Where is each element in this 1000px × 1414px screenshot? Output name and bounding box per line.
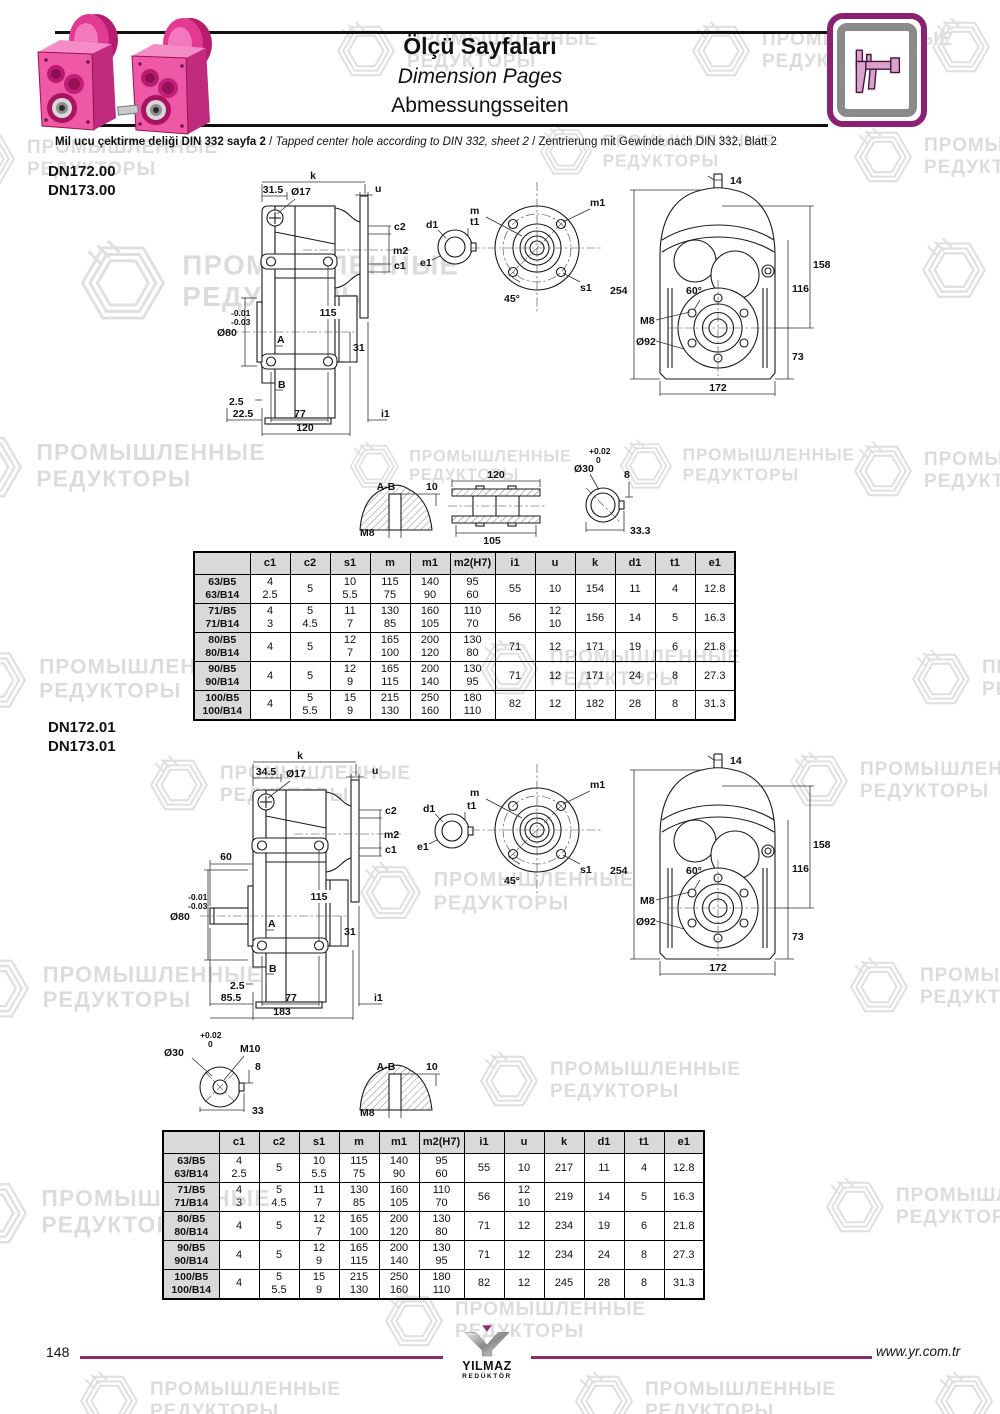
dim-value-cell: 4 3 — [250, 604, 290, 633]
dim-value-cell: 110 70 — [450, 604, 495, 633]
dim-value-cell: 12 — [504, 1241, 544, 1270]
hexagon-swirl-icon — [852, 440, 914, 502]
column-header: m2(H7) — [419, 1131, 464, 1154]
dim-value-cell: 5 4.5 — [290, 604, 330, 633]
dim-hole-d17: Ø17 — [286, 768, 306, 780]
tolerance-lower: -0.03 — [188, 901, 208, 911]
dim-60-degrees: 60° — [686, 285, 702, 297]
dim-value-cell: 12.8 — [695, 575, 735, 604]
dim-value-cell: 5 — [290, 633, 330, 662]
column-header: s1 — [299, 1131, 339, 1154]
dim-value-cell: 10 — [535, 575, 575, 604]
dim-value-cell: 21.8 — [664, 1212, 704, 1241]
dim-value-cell: 19 — [615, 633, 655, 662]
dim-i1: i1 — [381, 408, 390, 420]
column-header: u — [504, 1131, 544, 1154]
dimension-table-1: c1c2s1mm1m2(H7)i1ukd1t1e1 63/B5 63/B144 … — [193, 551, 736, 721]
column-header: m1 — [379, 1131, 419, 1154]
section-marker-b: B — [269, 963, 277, 975]
dim-value-cell: 215 130 — [339, 1270, 379, 1299]
table-row: 80/B5 80/B144512 7165 100200 120130 8071… — [194, 633, 735, 662]
dim-60: 60 — [220, 851, 232, 863]
dim-254: 254 — [610, 865, 628, 877]
dim-value-cell: 5 — [655, 604, 695, 633]
column-header: m — [339, 1131, 379, 1154]
dim-c1: c1 — [385, 844, 397, 856]
model-number: DN172.00 — [48, 162, 116, 181]
dim-value-cell: 14 — [584, 1183, 624, 1212]
dim-value-cell: 8 — [624, 1241, 664, 1270]
dim-value-cell: 71 — [495, 633, 535, 662]
hexagon-swirl-icon — [0, 128, 17, 190]
dim-value-cell: 250 160 — [410, 691, 450, 720]
dim-value-cell: 165 115 — [370, 662, 410, 691]
hexagon-swirl-icon — [0, 953, 31, 1024]
watermark-text: ПРОМЫШЛЕННЫЕРЕДУКТОРЫ — [683, 446, 855, 486]
dim-73: 73 — [792, 351, 804, 363]
table-header-row: c1c2s1mm1m2(H7)i1ukd1t1e1 — [163, 1131, 704, 1154]
dim-value-cell: 55 — [495, 575, 535, 604]
dim-value-cell: 27.3 — [664, 1241, 704, 1270]
gearbox-photo-1 — [26, 10, 126, 136]
dim-10: 10 — [426, 1061, 438, 1073]
dim-value-cell: 19 — [584, 1212, 624, 1241]
model-number: DN173.01 — [48, 737, 116, 756]
hexagon-swirl-icon — [910, 648, 972, 710]
watermark-text: ПРОМЫШЛЕННЫЕРЕДУКТОРЫ — [982, 657, 1000, 701]
dim-value-cell: 160 105 — [379, 1183, 419, 1212]
dim-value-cell: 200 120 — [379, 1212, 419, 1241]
dim-k: k — [310, 170, 316, 182]
dim-value-cell: 110 70 — [419, 1183, 464, 1212]
title-english: Dimension Pages — [310, 65, 650, 89]
dim-22-5: 22.5 — [233, 408, 254, 420]
model-cell: 71/B5 71/B14 — [163, 1183, 219, 1212]
table-row: 63/B5 63/B144 2.5510 5.5115 75140 9095 6… — [163, 1154, 704, 1183]
dim-d1: d1 — [423, 803, 435, 815]
dim-k: k — [297, 750, 303, 762]
dim-m2: m2 — [393, 245, 408, 257]
table-row: 71/B5 71/B144 35 4.511 7130 85160 105110… — [163, 1183, 704, 1212]
hexagon-swirl-icon — [538, 124, 594, 180]
table-row: 90/B5 90/B144512 9165 115200 140130 9571… — [194, 662, 735, 691]
section-1-models: DN172.00 DN173.00 — [48, 162, 116, 200]
page-title: Ölçü Sayfaları Dimension Pages Abmessung… — [310, 33, 650, 118]
section-label-ab: A-B — [377, 481, 396, 493]
dim-value-cell: 165 100 — [370, 633, 410, 662]
watermark: ПРОМЫШЛЕННЫЕРЕДУКТОРЫ — [920, 236, 1000, 304]
column-header: k — [575, 552, 615, 575]
dim-value-cell: 8 — [655, 662, 695, 691]
model-cell: 80/B5 80/B14 — [194, 633, 250, 662]
dim-value-cell: 4 — [250, 691, 290, 720]
dim-value-cell: 5 — [259, 1212, 299, 1241]
section-marker-a: A — [277, 334, 285, 346]
dim-value-cell: 5 — [259, 1154, 299, 1183]
dim-value-cell: 16.3 — [695, 604, 735, 633]
dim-d30: Ø30 — [574, 463, 594, 475]
dim-value-cell: 82 — [464, 1270, 504, 1299]
dim-172: 172 — [709, 962, 727, 974]
hexagon-swirl-icon — [0, 646, 28, 714]
dimension-table-2: c1c2s1mm1m2(H7)i1ukd1t1e1 63/B5 63/B144 … — [162, 1130, 705, 1300]
hexagon-swirl-icon — [824, 1176, 886, 1238]
dim-value-cell: 6 — [655, 633, 695, 662]
watermark-text: ПРОМЫШЛЕННЫЕРЕДУКТОРЫ — [645, 1379, 836, 1414]
model-cell: 90/B5 90/B14 — [163, 1241, 219, 1270]
dim-value-cell: 182 — [575, 691, 615, 720]
gearbox-photo-2 — [118, 10, 218, 136]
dim-e1: e1 — [417, 841, 429, 853]
table-row: 90/B5 90/B144512 9165 115200 140130 9571… — [163, 1241, 704, 1270]
hexagon-swirl-icon — [930, 16, 992, 78]
model-cell: 100/B5 100/B14 — [194, 691, 250, 720]
front-view-drawing-1: 14 254 158 116 73 60° M8 Ø92 172 — [598, 168, 830, 408]
dim-e1: e1 — [420, 257, 432, 269]
column-header: d1 — [584, 1131, 624, 1154]
watermark-text: ПРОМЫШЛЕННЫЕРЕДУКТОРЫ — [860, 759, 1000, 803]
dim-8: 8 — [255, 1061, 261, 1073]
tolerance-lower: 0 — [208, 1039, 213, 1049]
watermark: ПРОМЫШЛЕННЫЕРЕДУКТОРЫ — [478, 1050, 741, 1112]
shaft-end-detail-2: +0.02 0 Ø30 M10 8 33 — [152, 1028, 297, 1123]
tolerance-lower: 0 — [596, 455, 601, 465]
dim-bore-d80: Ø80 — [170, 911, 190, 923]
dim-value-cell: 4 — [655, 575, 695, 604]
dim-value-cell: 56 — [464, 1183, 504, 1212]
subtitle-separator: / — [269, 136, 272, 148]
dim-value-cell: 12 10 — [504, 1183, 544, 1212]
dim-value-cell: 130 85 — [339, 1183, 379, 1212]
column-header: t1 — [655, 552, 695, 575]
page-number: 148 — [46, 1344, 69, 1360]
dim-value-cell: 6 — [624, 1212, 664, 1241]
product-photos — [26, 10, 218, 141]
dim-60-degrees: 60° — [686, 865, 702, 877]
dim-120: 120 — [296, 422, 314, 434]
dim-value-cell: 11 — [584, 1154, 624, 1183]
dim-77: 77 — [285, 992, 297, 1004]
dim-77: 77 — [294, 408, 306, 420]
watermark: ПРОМЫШЛЕННЫЕРЕДУКТОРЫ — [910, 648, 1000, 710]
dim-value-cell: 71 — [464, 1241, 504, 1270]
hexagon-swirl-icon — [573, 1370, 635, 1414]
title-turkish: Ölçü Sayfaları — [310, 33, 650, 60]
table-row: 63/B5 63/B144 2.5510 5.5115 75140 9095 6… — [194, 575, 735, 604]
column-header — [163, 1131, 219, 1154]
dim-value-cell: 234 — [544, 1212, 584, 1241]
dim-bore-d80: Ø80 — [217, 327, 237, 339]
dim-value-cell: 11 — [615, 575, 655, 604]
dim-value-cell: 4 3 — [219, 1183, 259, 1212]
yilmaz-logo-icon — [447, 1324, 527, 1356]
hexagon-swirl-icon — [78, 1370, 140, 1414]
dim-value-cell: 245 — [544, 1270, 584, 1299]
column-header — [194, 552, 250, 575]
dim-value-cell: 250 160 — [379, 1270, 419, 1299]
column-header: e1 — [695, 552, 735, 575]
dim-c2: c2 — [385, 805, 397, 817]
column-header: t1 — [624, 1131, 664, 1154]
dim-85-5: 85.5 — [221, 992, 242, 1004]
dim-value-cell: 171 — [575, 633, 615, 662]
column-header: m1 — [410, 552, 450, 575]
watermark: ПРОМЫШЛЕННЫЕРЕДУКТОРЫ — [852, 440, 1000, 502]
column-header: c1 — [219, 1131, 259, 1154]
hexagon-swirl-icon — [478, 1050, 540, 1112]
dim-value-cell: 10 5.5 — [299, 1154, 339, 1183]
dim-value-cell: 11 7 — [330, 604, 370, 633]
dim-s1: s1 — [580, 864, 592, 876]
model-cell: 63/B5 63/B14 — [194, 575, 250, 604]
dim-10: 10 — [426, 481, 438, 493]
hexagon-swirl-icon — [0, 1176, 29, 1250]
dim-value-cell: 82 — [495, 691, 535, 720]
dim-value-cell: 10 — [504, 1154, 544, 1183]
dim-value-cell: 21.8 — [695, 633, 735, 662]
caliper-icon — [837, 23, 917, 117]
title-german: Abmessungsseiten — [310, 94, 650, 118]
column-header: d1 — [615, 552, 655, 575]
dim-33: 33 — [252, 1105, 264, 1117]
dim-value-cell: 200 140 — [379, 1241, 419, 1270]
hexagon-swirl-icon — [933, 1370, 995, 1414]
dim-value-cell: 71 — [464, 1212, 504, 1241]
dim-158: 158 — [813, 839, 831, 851]
dim-value-cell: 171 — [575, 662, 615, 691]
dim-value-cell: 165 100 — [339, 1212, 379, 1241]
watermark: ПРОМЫШЛЕННЫЕРЕДУКТОРЫ — [930, 16, 1000, 78]
dim-value-cell: 12 — [535, 633, 575, 662]
dim-d92: Ø92 — [636, 916, 656, 928]
dim-m10: M10 — [240, 1043, 261, 1055]
watermark-text: ПРОМЫШЛЕННЫЕРЕДУКТОРЫ — [150, 1379, 341, 1414]
dim-value-cell: 12 9 — [330, 662, 370, 691]
dim-value-cell: 28 — [584, 1270, 624, 1299]
table-header-row: c1c2s1mm1m2(H7)i1ukd1t1e1 — [194, 552, 735, 575]
dim-s1: s1 — [580, 282, 592, 294]
dim-14: 14 — [730, 175, 742, 187]
dim-value-cell: 130 95 — [450, 662, 495, 691]
subtitle-separator: / — [532, 136, 535, 148]
dim-value-cell: 5 — [259, 1241, 299, 1270]
dim-value-cell: 24 — [615, 662, 655, 691]
logo-text-reduktor: REDÜKTÖR — [443, 1373, 531, 1380]
dim-value-cell: 140 90 — [410, 575, 450, 604]
section-marker-b: B — [278, 379, 286, 391]
model-cell: 90/B5 90/B14 — [194, 662, 250, 691]
watermark-text: ПРОМЫШЛЕННЫЕРЕДУКТОРЫ — [896, 1185, 1000, 1229]
hexagon-swirl-icon — [920, 236, 988, 304]
website-url: www.yr.com.tr — [876, 1344, 960, 1359]
front-view-drawing-2: 14 254 158 116 73 60° M8 Ø92 172 — [598, 748, 830, 988]
dim-value-cell: 12 — [535, 691, 575, 720]
model-number: DN173.00 — [48, 181, 116, 200]
dim-34-5: 34.5 — [256, 766, 277, 778]
catalog-page: ПРОМЫШЛЕННЫЕРЕДУКТОРЫПРОМЫШЛЕННЫЕРЕДУКТО… — [0, 0, 1000, 1414]
dim-value-cell: 156 — [575, 604, 615, 633]
dim-m8-tap: M8 — [360, 1107, 375, 1119]
dim-c1: c1 — [394, 260, 406, 272]
dim-value-cell: 180 110 — [450, 691, 495, 720]
dim-value-cell: 219 — [544, 1183, 584, 1212]
bore-end-detail-1: +0.02 0 Ø30 8 33.3 — [572, 444, 664, 544]
dim-45-degrees: 45° — [504, 293, 520, 305]
column-header: u — [535, 552, 575, 575]
column-header: m2(H7) — [450, 552, 495, 575]
keyway-section-detail-1: A-B 10 M8 — [352, 478, 447, 540]
dim-value-cell: 130 80 — [450, 633, 495, 662]
dim-value-cell: 55 — [464, 1154, 504, 1183]
dim-value-cell: 27.3 — [695, 662, 735, 691]
dim-value-cell: 56 — [495, 604, 535, 633]
dim-value-cell: 215 130 — [370, 691, 410, 720]
dim-value-cell: 4 — [624, 1154, 664, 1183]
dim-d1: d1 — [426, 219, 438, 231]
dim-value-cell: 14 — [615, 604, 655, 633]
footer-rule-right — [531, 1356, 872, 1359]
dim-254: 254 — [610, 285, 628, 297]
column-header: c2 — [259, 1131, 299, 1154]
table-row: 71/B5 71/B144 35 4.511 7130 85160 105110… — [194, 604, 735, 633]
dim-m8: M8 — [640, 895, 655, 907]
dim-172: 172 — [709, 382, 727, 394]
dim-value-cell: 24 — [584, 1241, 624, 1270]
dim-value-cell: 130 85 — [370, 604, 410, 633]
subtitle-line: Mil ucu çektirme deliği DIN 332 sayfa 2 … — [55, 136, 955, 148]
model-cell: 100/B5 100/B14 — [163, 1270, 219, 1299]
watermark: ПРОМЫШЛЕННЫЕРЕДУКТОРЫ — [78, 1370, 341, 1414]
column-header: k — [544, 1131, 584, 1154]
caliper-icon-box — [827, 13, 927, 127]
dim-value-cell: 5 — [290, 575, 330, 604]
subtitle-turkish: Mil ucu çektirme deliği DIN 332 sayfa 2 — [55, 136, 266, 148]
dim-value-cell: 11 7 — [299, 1183, 339, 1212]
dim-value-cell: 4 — [219, 1212, 259, 1241]
dim-116: 116 — [792, 283, 809, 295]
dim-8: 8 — [624, 469, 630, 481]
dim-116: 116 — [792, 863, 809, 875]
dim-value-cell: 12 — [504, 1212, 544, 1241]
hexagon-swirl-icon — [690, 20, 752, 82]
dim-value-cell: 160 105 — [410, 604, 450, 633]
dim-120-shaft: 120 — [487, 469, 505, 481]
dim-value-cell: 12 7 — [299, 1212, 339, 1241]
table-row: 100/B5 100/B1445 5.515 9215 130250 16018… — [194, 691, 735, 720]
dim-value-cell: 5 — [624, 1183, 664, 1212]
dim-33-3: 33.3 — [630, 525, 651, 537]
dim-value-cell: 130 95 — [419, 1241, 464, 1270]
model-number: DN172.01 — [48, 718, 116, 737]
dim-value-cell: 200 120 — [410, 633, 450, 662]
dim-value-cell: 8 — [655, 691, 695, 720]
dim-d30: Ø30 — [164, 1047, 184, 1059]
dim-value-cell: 4 2.5 — [250, 575, 290, 604]
dim-value-cell: 5 — [290, 662, 330, 691]
column-header: i1 — [464, 1131, 504, 1154]
dim-value-cell: 4 — [250, 633, 290, 662]
dim-45-degrees: 45° — [504, 875, 520, 887]
dim-u: u — [375, 183, 381, 195]
dim-hole-d17: Ø17 — [291, 186, 311, 198]
dim-value-cell: 4 — [219, 1270, 259, 1299]
dim-m2: m2 — [384, 829, 399, 841]
dim-value-cell: 95 60 — [450, 575, 495, 604]
dim-value-cell: 5 5.5 — [290, 691, 330, 720]
section-marker-a: A — [268, 918, 276, 930]
column-header: c1 — [250, 552, 290, 575]
column-header: e1 — [664, 1131, 704, 1154]
dim-value-cell: 180 110 — [419, 1270, 464, 1299]
dim-value-cell: 5 5.5 — [259, 1270, 299, 1299]
dim-value-cell: 217 — [544, 1154, 584, 1183]
dim-value-cell: 31.3 — [664, 1270, 704, 1299]
dim-value-cell: 165 115 — [339, 1241, 379, 1270]
dim-m: m — [470, 787, 479, 799]
dim-2-5: 2.5 — [230, 980, 245, 992]
dim-value-cell: 4 — [219, 1241, 259, 1270]
hexagon-swirl-icon — [848, 956, 910, 1018]
dim-value-cell: 4 — [250, 662, 290, 691]
model-cell: 63/B5 63/B14 — [163, 1154, 219, 1183]
dim-value-cell: 5 4.5 — [259, 1183, 299, 1212]
hexagon-swirl-icon — [78, 238, 168, 328]
dim-i1: i1 — [374, 992, 383, 1004]
dim-value-cell: 115 75 — [339, 1154, 379, 1183]
dim-value-cell: 31.3 — [695, 691, 735, 720]
dim-value-cell: 154 — [575, 575, 615, 604]
dim-value-cell: 12.8 — [664, 1154, 704, 1183]
logo-text-yilmaz: YILMAZ — [443, 1359, 531, 1373]
footer-rule-left — [80, 1356, 443, 1359]
column-header: i1 — [495, 552, 535, 575]
column-header: s1 — [330, 552, 370, 575]
dim-value-cell: 95 60 — [419, 1154, 464, 1183]
section-label-ab: A-B — [377, 1061, 396, 1073]
dim-value-cell: 16.3 — [664, 1183, 704, 1212]
dim-value-cell: 115 75 — [370, 575, 410, 604]
dim-value-cell: 12 9 — [299, 1241, 339, 1270]
dim-158: 158 — [813, 259, 831, 271]
hexagon-swirl-icon — [0, 430, 24, 504]
model-cell: 71/B5 71/B14 — [194, 604, 250, 633]
dim-105-shaft: 105 — [483, 535, 501, 547]
yilmaz-logo: YILMAZ REDÜKTÖR — [443, 1324, 531, 1380]
dim-d92: Ø92 — [636, 336, 656, 348]
dim-183: 183 — [273, 1006, 291, 1018]
keyway-section-detail-2: A-B 10 M8 — [352, 1058, 447, 1120]
watermark: ПРОМЫШЛЕННЫЕРЕДУКТОРЫ — [573, 1370, 836, 1414]
dim-value-cell: 12 — [504, 1270, 544, 1299]
table-row: 100/B5 100/B1445 5.515 9215 130250 16018… — [163, 1270, 704, 1299]
model-cell: 80/B5 80/B14 — [163, 1212, 219, 1241]
dim-value-cell: 12 10 — [535, 604, 575, 633]
dim-m8: M8 — [640, 315, 655, 327]
dim-14: 14 — [730, 755, 742, 767]
dim-31: 31 — [344, 926, 356, 938]
column-header: m — [370, 552, 410, 575]
dim-value-cell: 200 140 — [410, 662, 450, 691]
table-row: 80/B5 80/B144512 7165 100200 120130 8071… — [163, 1212, 704, 1241]
watermark-text: ПРОМЫШЛЕННЫЕРЕДУКТОРЫ — [924, 449, 1000, 493]
dim-value-cell: 4 2.5 — [219, 1154, 259, 1183]
dim-115: 115 — [311, 891, 328, 903]
subtitle-german: Zentrierung mit Gewinde nach DIN 332, Bl… — [539, 136, 777, 148]
dim-73: 73 — [792, 931, 804, 943]
dim-value-cell: 15 9 — [330, 691, 370, 720]
dim-m: m — [470, 205, 479, 217]
dim-m8-tap: M8 — [360, 527, 375, 539]
